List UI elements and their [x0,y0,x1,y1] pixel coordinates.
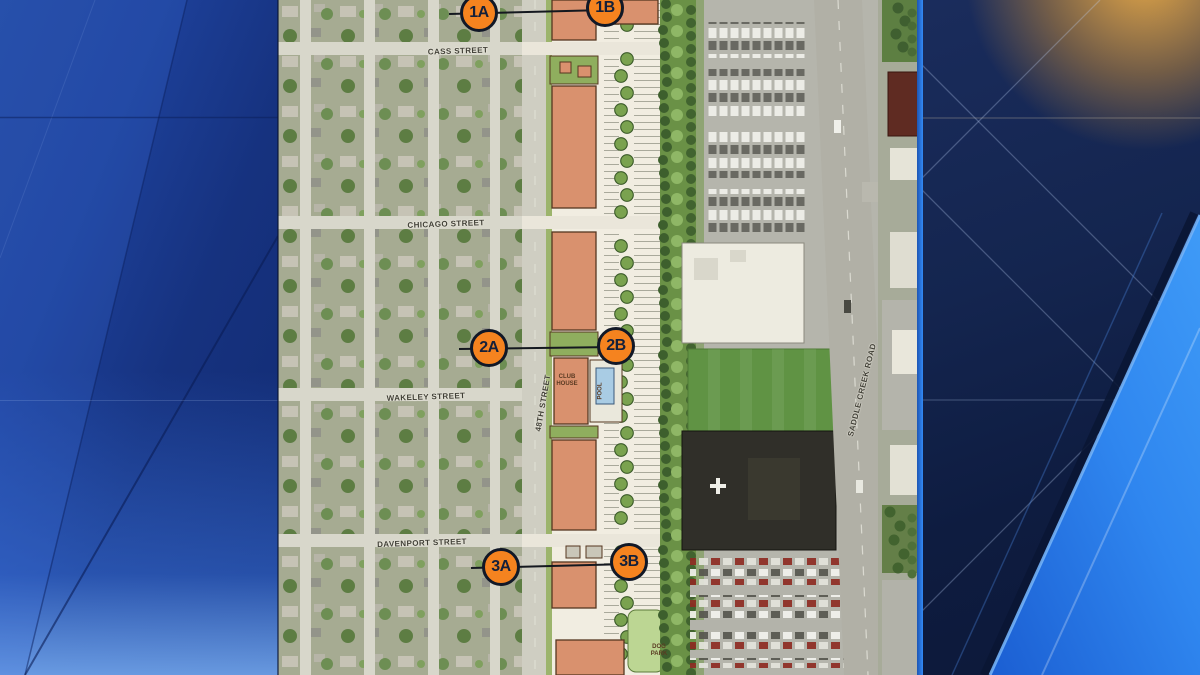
dark-roof-building [682,431,836,550]
bg-left-lines [0,0,278,675]
east-frontage [878,0,922,675]
clubhouse-building [554,358,588,424]
aerial-map-art [278,0,922,675]
green-field [688,349,846,434]
bg-right-lines [922,0,1200,675]
site-plan-map [278,0,922,675]
map-right-edge-accent [917,0,923,675]
news-fullscreen-graphic: 1A1B2A2B3A3BCASS STREETCHICAGO STREETWAK… [0,0,1200,675]
red-brick-building [888,72,920,136]
residential-neighborhood [278,0,548,675]
map-left-edge [277,0,279,675]
street-48th [522,0,548,675]
studio-background-left [0,0,278,675]
large-white-building [682,243,804,343]
dog-park [628,610,664,672]
studio-background-right [922,0,1200,675]
parking-stalls [604,0,660,675]
pool-area [590,360,622,422]
